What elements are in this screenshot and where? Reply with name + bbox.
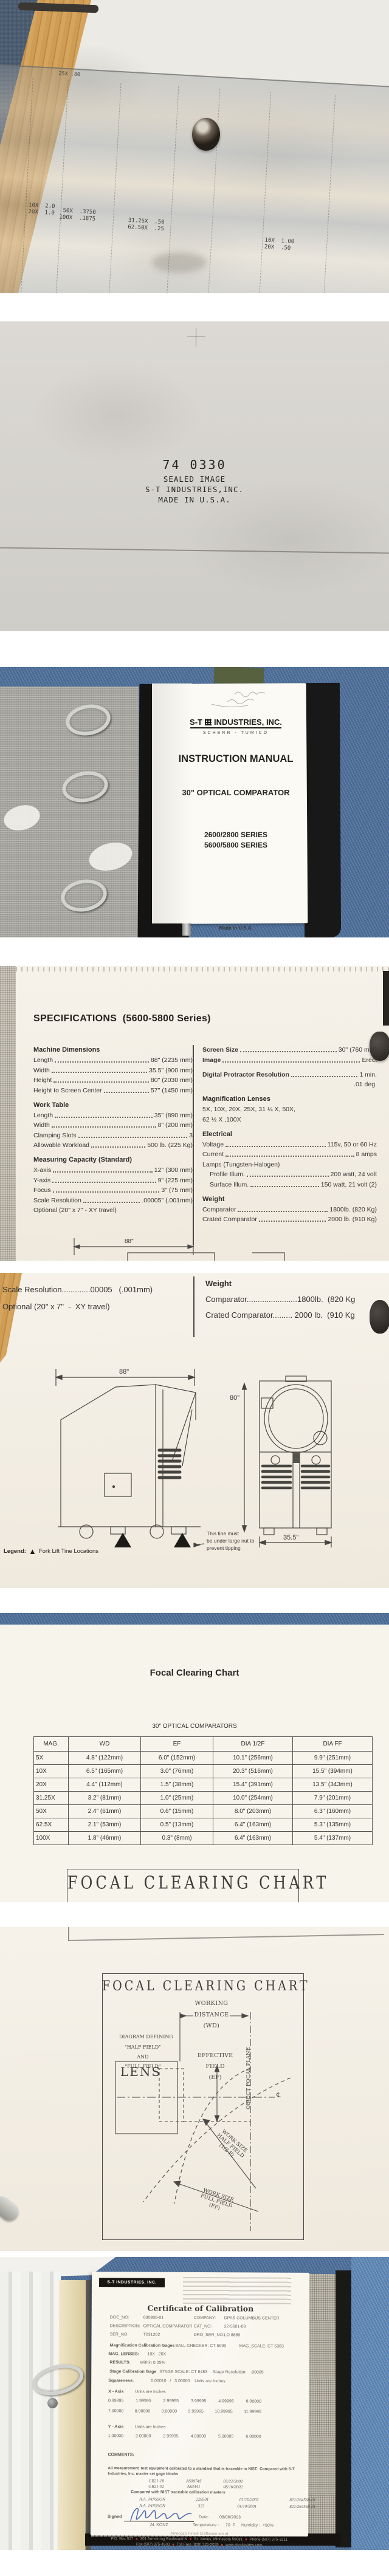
cell: 62.5X	[34, 1818, 69, 1832]
brand-underline	[190, 727, 281, 728]
centerline-symbol: ℄	[277, 2091, 281, 2099]
field-value: LO 8889	[224, 2333, 241, 2337]
brand-rest: INDUSTRIES, INC.	[214, 718, 282, 727]
gage-date: 03/22/2002	[223, 2479, 243, 2484]
field-label: DESCRIPTION:	[110, 2324, 140, 2328]
cell: 10.1" (256mm)	[213, 1752, 293, 1765]
temp-label: Temperature :	[193, 2523, 219, 2527]
scanned-manual-collage: 25X .80 10X 2.0 20X 1.0 50X .3750 100X .…	[0, 0, 389, 2576]
cell: 50X	[34, 1805, 69, 1818]
cell: 15.4" (391mm)	[213, 1778, 293, 1792]
footer-seg: www.stindustries.com	[225, 2543, 263, 2547]
footer-seg: St. James, Minnesota 56081	[194, 2537, 243, 2542]
cell: 0.6" (15mm)	[141, 1805, 213, 1818]
cell: 10X	[34, 1765, 69, 1778]
cell: 3.0" (76mm)	[141, 1765, 213, 1778]
ef-label: FIELD	[196, 2063, 235, 2070]
chart-tick-line	[109, 83, 122, 293]
cell: 13.5" (343mm)	[293, 1778, 373, 1792]
strap	[214, 667, 264, 685]
field-label: SER_NO:	[110, 2332, 129, 2337]
fine-print-lines	[183, 2277, 291, 2304]
ef-label: (EF)	[196, 2074, 235, 2081]
ef-label: EFFECTIVE	[196, 2052, 235, 2059]
field-value: MAG_SCALE: CT 5383	[239, 2344, 283, 2348]
signer-name: AL KONZ	[150, 2523, 168, 2527]
maker-line: S-T INDUSTRIES,INC.	[0, 485, 389, 494]
humidity-value: Humidity : <50%	[241, 2523, 274, 2527]
field-label: CAT_NO:	[194, 2324, 212, 2329]
cover-title: INSTRUCTION MANUAL	[157, 753, 315, 765]
cover-made-in: Made in U.S.A.	[157, 925, 315, 931]
made-in-line: MADE IN U.S.A.	[0, 495, 389, 504]
wd-label: (WD)	[193, 2023, 230, 2029]
photo-focal-diagram: FOCAL CLEARING CHART WORKING DISTANCE	[0, 1927, 389, 2251]
field-value: T031202	[143, 2333, 160, 2337]
defining-label: "HALF FIELD"	[119, 2044, 167, 2050]
cell: 6.5" (165mm)	[69, 1765, 141, 1778]
footer-contact: Fax (507) 375-4503 ■ Toll Free (800) 326…	[91, 2542, 308, 2548]
focal-clearing-table: MAG. WD EF DIA 1/2F DIA FF 5X4.8" (122mm…	[33, 1736, 373, 1845]
units-label: Units are Inches	[135, 2425, 166, 2429]
nist-note: Industries, Inc. master set gage blocks	[108, 2472, 178, 2476]
master-serial: 323	[198, 2504, 205, 2509]
cell: 3.2" (81mm)	[69, 1792, 141, 1805]
gage-date: 08/16/2002	[223, 2484, 243, 2489]
axis-label: X - Axis	[108, 2389, 123, 2394]
cell: 1.5" (38mm)	[141, 1778, 213, 1792]
field-label: COMPANY:	[194, 2316, 216, 2320]
photo-sealed-image: 74 0330 SEALED IMAGE S-T INDUSTRIES,INC.…	[0, 321, 389, 631]
field-value: 030806-01	[143, 2316, 164, 2320]
reading: 11.99995	[244, 2410, 261, 2414]
reading: 1.99995	[136, 2399, 151, 2403]
master-ref: 821/264568-01	[289, 2498, 315, 2502]
table-row: 62.5X2.1" (53mm)0.5" (13mm)6.4" (163mm)5…	[34, 1818, 373, 1832]
date-value: 08/06/2003	[219, 2515, 241, 2519]
binder-screw	[47, 2398, 58, 2408]
reading: 4.00000	[191, 2434, 206, 2439]
mag-scale-pair: 10X 2.0 20X 1.0	[28, 202, 55, 217]
cell: 20X	[34, 1778, 69, 1792]
dimension-drawing-top	[0, 966, 389, 1261]
master-serial: 228501	[196, 2497, 208, 2502]
table-row: 31.25X3.2" (81mm)1.0" (25mm)10.0" (254mm…	[34, 1792, 373, 1805]
reading: 1.00000	[108, 2434, 123, 2438]
field-label: Squareness:	[108, 2379, 134, 2383]
reading: 0.99995	[108, 2399, 123, 2403]
chart-tick-line	[323, 95, 336, 293]
cell: 2.1" (53mm)	[69, 1818, 141, 1832]
sealed-image-line: SEALED IMAGE	[0, 474, 389, 484]
cell: 31.25X	[34, 1792, 69, 1805]
banner-title: FOCAL CLEARING CHART	[67, 1872, 298, 1893]
red-square-bullet: ■	[136, 2537, 137, 2541]
reading: 2.99995	[163, 2434, 178, 2439]
comments-label: COMMENTS:	[108, 2453, 134, 2457]
banner-box: FOCAL CLEARING CHART	[67, 1869, 299, 1902]
cell: 6.3" (160mm)	[293, 1805, 373, 1818]
field-label: DOC_NO:	[110, 2315, 129, 2320]
mag-scale-label: 25X .80	[58, 70, 80, 78]
reading: 9.99995	[188, 2410, 204, 2414]
cover-series-2: 5600/5800 SERIES	[157, 841, 315, 849]
cover-content: S-T INDUSTRIES, INC. SCHERR - TUMICO INS…	[157, 683, 315, 923]
gage-block-row: GB21-10 AS0974S 03/22/2002	[148, 2479, 243, 2484]
reading: 3.99995	[191, 2399, 206, 2403]
gage-id: GB21-10	[148, 2479, 164, 2484]
st-logo: S-T INDUSTRIES, INC.	[99, 2278, 165, 2287]
comparator-line-drawing	[0, 1273, 389, 1588]
red-square-bullet: ■	[221, 2543, 223, 2547]
field-label: DRO_SER_NO:	[194, 2333, 224, 2337]
y-axis-row: 1.00000 2.00000 2.99995 4.00000 5.00005 …	[108, 2434, 261, 2439]
label-sticker	[86, 838, 136, 875]
gage-id: GB21-02	[148, 2484, 164, 2489]
signed-label: Signed	[108, 2515, 122, 2519]
col-header: DIA FF	[293, 1737, 373, 1752]
label-sticker	[1, 801, 43, 834]
denim-sliver	[0, 1613, 389, 1625]
table-row: 5X4.8" (122mm)6.0" (152mm)10.1" (256mm)9…	[34, 1752, 373, 1765]
gage-block-row: GB21-02 AS3441 08/16/2002	[148, 2484, 243, 2490]
red-square-bullet: ■	[172, 2543, 174, 2547]
table-header-row: MAG. WD EF DIA 1/2F DIA FF	[34, 1737, 373, 1752]
certificate-page: S-T INDUSTRIES, INC. Certificate of Cali…	[91, 2272, 309, 2537]
dim-label-88: 88"	[125, 1238, 134, 1245]
footer-seg: Toll Free (800) 326-2039	[177, 2543, 219, 2547]
reading: 7.00000	[108, 2409, 123, 2413]
footer-seg: P.O. Box 517	[111, 2537, 134, 2541]
crosshair-icon	[187, 337, 205, 337]
reading: 8.00000	[135, 2409, 150, 2413]
wd-label: DISTANCE	[193, 2012, 230, 2018]
dim-label-height: 80"	[230, 1394, 239, 1402]
col-header: EF	[141, 1737, 213, 1752]
chart-tick-line	[259, 92, 272, 293]
gage-serial: AS0974S	[186, 2479, 201, 2484]
cell: 1.8" (46mm)	[69, 1832, 141, 1845]
reading: 6.00000	[246, 2399, 261, 2403]
footer-seg: Phone (507) 375-3211	[249, 2537, 287, 2542]
binder-spine-strip	[57, 2280, 87, 2550]
defining-label: DIAGRAM DEFINING	[119, 2034, 167, 2040]
legend-label: Legend:	[4, 1548, 26, 1555]
focal-page-title: Focal Clearing Chart	[0, 1668, 389, 1678]
mag-scale-pair: 50X .3750 100X .1875	[56, 207, 96, 223]
photo-certificate: S-T INDUSTRIES, INC. Certificate of Cali…	[0, 2257, 389, 2550]
tipping-note-line: This tine must	[207, 1530, 239, 1536]
chart-tick-line	[21, 78, 33, 292]
sheet-edge-line	[0, 547, 389, 554]
legend: Legend: ▲ Fork Lift Tine Locations	[4, 1547, 98, 1555]
focal-table-title: 30" OPTICAL COMPARATORS	[0, 1723, 389, 1730]
certificate-title: Certificate of Calibration	[92, 2303, 309, 2314]
cell: 5.3" (135mm)	[293, 1818, 373, 1832]
brand-sub: SCHERR - TUMICO	[157, 731, 315, 735]
brand-logo: S-T INDUSTRIES, INC.	[157, 718, 315, 727]
red-square-bullet: ■	[190, 2537, 191, 2542]
cover-series-1: 2600/2800 SERIES	[157, 831, 315, 839]
x-axis-row: 0.99995 1.99995 2.99995 3.99995 4.99995 …	[108, 2399, 261, 2403]
dim-label-depth: 35.5"	[283, 1534, 298, 1541]
defining-label: AND	[119, 2054, 167, 2060]
table-row: 20X4.4" (112mm)1.5" (38mm)15.4" (391mm)1…	[34, 1778, 373, 1792]
cell: 4.8" (122mm)	[69, 1752, 141, 1765]
master-date: 01/10/2001	[237, 2504, 256, 2509]
mag-scale-pair: 31.25X .50 62.50X .25	[128, 218, 165, 233]
cell: 1.0" (25mm)	[141, 1792, 213, 1805]
cell: 9.9" (251mm)	[293, 1752, 373, 1765]
compared-note: Compared with NIST traceable calibration…	[131, 2490, 225, 2495]
x-axis-row: 7.00000 8.00000 9.00000 9.99995 10.99995…	[108, 2409, 261, 2414]
footer-seg: Fax (507) 375-4503	[136, 2542, 170, 2547]
reading: 2.99995	[164, 2399, 179, 2403]
cell: 2.4" (61mm)	[69, 1805, 141, 1818]
photo-specifications-page: SPECIFICATIONS (5600-5800 Series) Machin…	[0, 966, 389, 1261]
cell: 15.5" (394mm)	[293, 1765, 373, 1778]
field-label: Magnification Calibration Gages	[109, 2343, 174, 2348]
cell: 7.9" (201mm)	[293, 1792, 373, 1805]
table-row: 10X6.5" (165mm)3.0" (76mm)20.3" (516mm)1…	[34, 1765, 373, 1778]
legend-text: Fork Lift Tine Locations	[39, 1548, 98, 1555]
master-date: 01/10/2001	[239, 2497, 259, 2502]
field-label: Stage Resolution:	[213, 2370, 246, 2374]
drilled-hole	[192, 118, 220, 151]
cell: 100X	[34, 1832, 69, 1845]
chart-tick-line	[56, 80, 69, 293]
cell: 10.0" (254mm)	[213, 1792, 293, 1805]
fork-lift-tine-icon: ▲	[29, 1547, 36, 1555]
field-value: Within 0.05%	[140, 2360, 165, 2365]
wd-label: WORKING	[193, 2000, 230, 2007]
lens-label: LENS	[120, 2064, 161, 2079]
photo-overlay-chart: 25X .80 10X 2.0 20X 1.0 50X .3750 100X .…	[0, 0, 389, 293]
photo-dimension-drawing: Scale Resolution.............00005 (.001…	[0, 1273, 389, 1588]
field-value: 10X 20X	[147, 2352, 166, 2357]
master-name: A.A. JANSSON	[139, 2496, 165, 2501]
col-header: DIA 1/2F	[213, 1737, 293, 1752]
reading: 5.00005	[218, 2434, 233, 2439]
cell: 6.0" (152mm)	[141, 1752, 213, 1765]
field-value: 22-5601-03	[224, 2324, 246, 2329]
units-label: Units are Inches	[135, 2389, 166, 2394]
field-label: MAG_LENSES:	[108, 2352, 139, 2356]
reading: 6.00000	[246, 2434, 261, 2439]
table-row: 100X1.8" (46mm)0.3" (8mm)6.4" (163mm)5.4…	[34, 1832, 373, 1845]
table-row: 50X2.4" (61mm)0.6" (15mm)8.0" (203mm)6.3…	[34, 1805, 373, 1818]
date-label: Date:	[199, 2515, 209, 2519]
cell: 20.3" (516mm)	[213, 1765, 293, 1778]
reading: 9.00000	[162, 2410, 177, 2414]
cell: 5X	[34, 1752, 69, 1765]
denim-bright	[351, 2257, 389, 2550]
dim-label-width: 88"	[119, 1368, 129, 1375]
photo-focal-chart-page: Focal Clearing Chart 30" OPTICAL COMPARA…	[0, 1613, 389, 1902]
field-value: BALL CHECKER: CT 5999	[175, 2344, 226, 2348]
grid-logo-icon	[205, 719, 212, 725]
field-value: DPAS COLUMBUS CENTER	[224, 2316, 280, 2320]
field-value: 0.00010 / 3.00000 Units are Inches	[151, 2379, 225, 2384]
cell: 8.0" (203mm)	[213, 1805, 293, 1818]
master-ref: 821/264568-01	[289, 2504, 315, 2509]
cell: 4.4" (112mm)	[69, 1778, 141, 1792]
mag-scale-pair: 10X 1.00 20X .50	[264, 238, 295, 253]
sleeve-pages-edge	[0, 2272, 61, 2550]
footer-seg: 301 Armstrong Boulevard N	[140, 2537, 187, 2541]
tipping-note-line: prevent tipping	[207, 1545, 241, 1551]
field-value: .00005	[250, 2370, 263, 2374]
reading: 4.99995	[218, 2399, 233, 2403]
cover-product: 30" OPTICAL COMPARATOR	[157, 788, 315, 797]
object-focal-plane-label: OBJECT FOCAL PLANE	[246, 2018, 254, 2109]
shadow-blob	[152, 252, 207, 273]
photo-manual-cover: S-T INDUSTRIES, INC. SCHERR - TUMICO INS…	[0, 667, 389, 937]
tipping-note-line: be under large nut to	[207, 1538, 254, 1544]
cell: 6.4" (163mm)	[213, 1832, 293, 1845]
crosshair-icon	[196, 328, 196, 346]
red-square-bullet: ■	[245, 2537, 247, 2542]
reading: 10.99995	[215, 2410, 232, 2414]
brand-st: S-T	[190, 718, 202, 727]
cell: 0.3" (8mm)	[141, 1832, 213, 1845]
cell: 6.4" (163mm)	[213, 1818, 293, 1832]
field-label: RESULTS:	[109, 2360, 131, 2365]
col-header: MAG.	[34, 1737, 69, 1752]
gage-serial: AS3441	[187, 2484, 201, 2489]
reading: 2.00000	[136, 2434, 151, 2438]
temp-value: 70 F	[225, 2523, 235, 2527]
cell: 0.5" (13mm)	[141, 1818, 213, 1832]
axis-label: Y - Axis	[108, 2425, 123, 2429]
col-header: WD	[69, 1737, 141, 1752]
part-number: 74 0330	[0, 457, 389, 472]
cell: 5.4" (137mm)	[293, 1832, 373, 1845]
field-value: STAGE SCALE: CT 8483	[159, 2370, 207, 2374]
field-label: Stage Calibration Gage	[109, 2369, 156, 2374]
field-value: OPTICAL COMPARATOR	[143, 2324, 193, 2329]
